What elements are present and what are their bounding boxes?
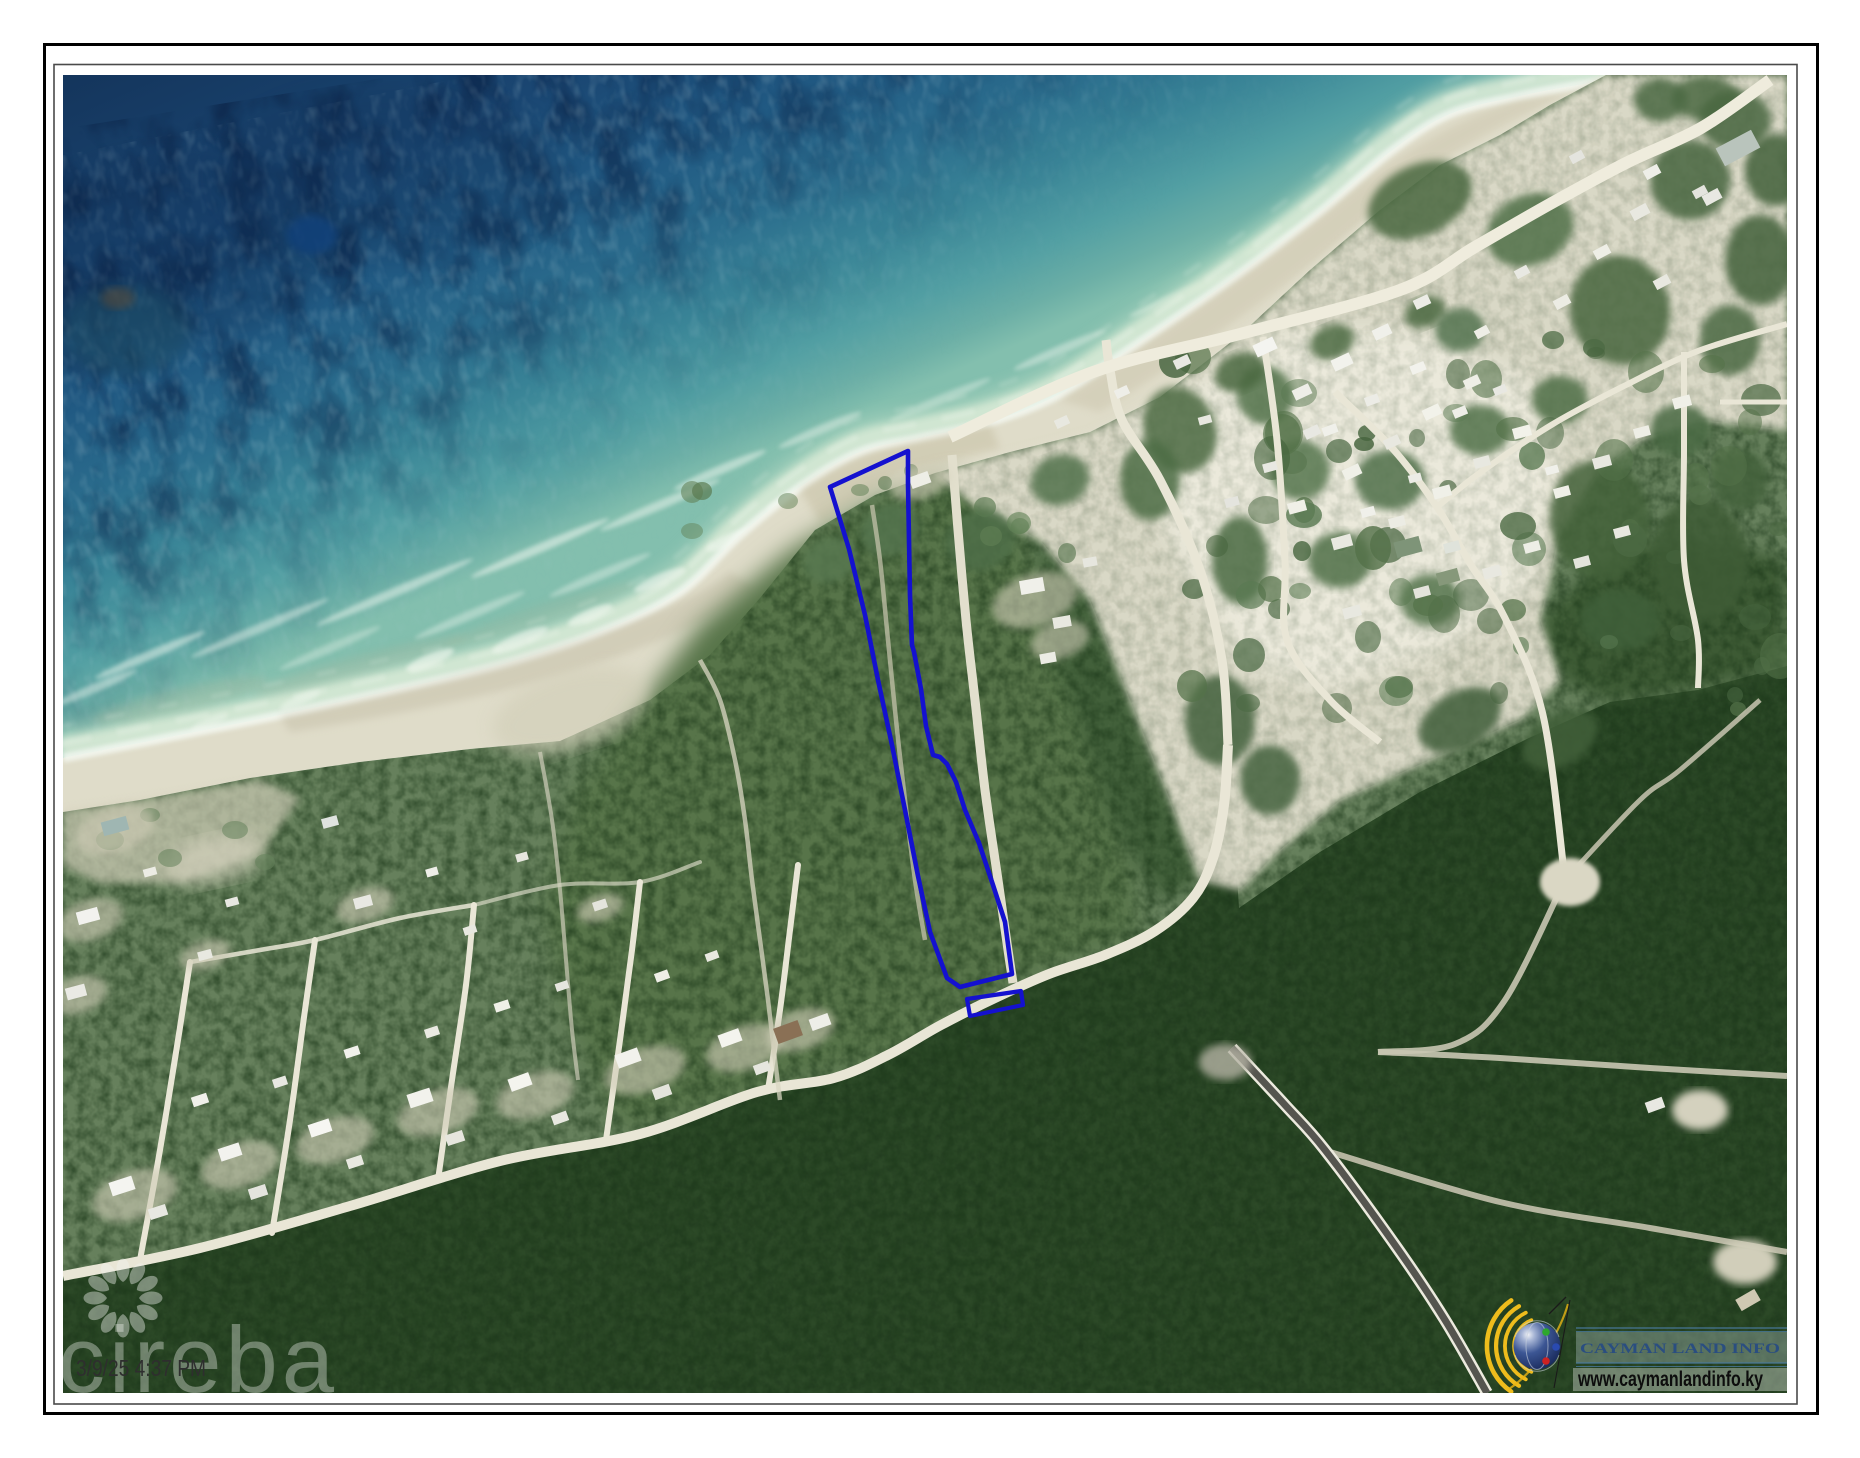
svg-text:3/9/25 4:37 PM: 3/9/25 4:37 PM: [76, 1355, 206, 1381]
svg-text:CAYMAN LAND INFO: CAYMAN LAND INFO: [1580, 1341, 1780, 1357]
svg-text:www.caymanlandinfo.ky: www.caymanlandinfo.ky: [1577, 1368, 1763, 1391]
